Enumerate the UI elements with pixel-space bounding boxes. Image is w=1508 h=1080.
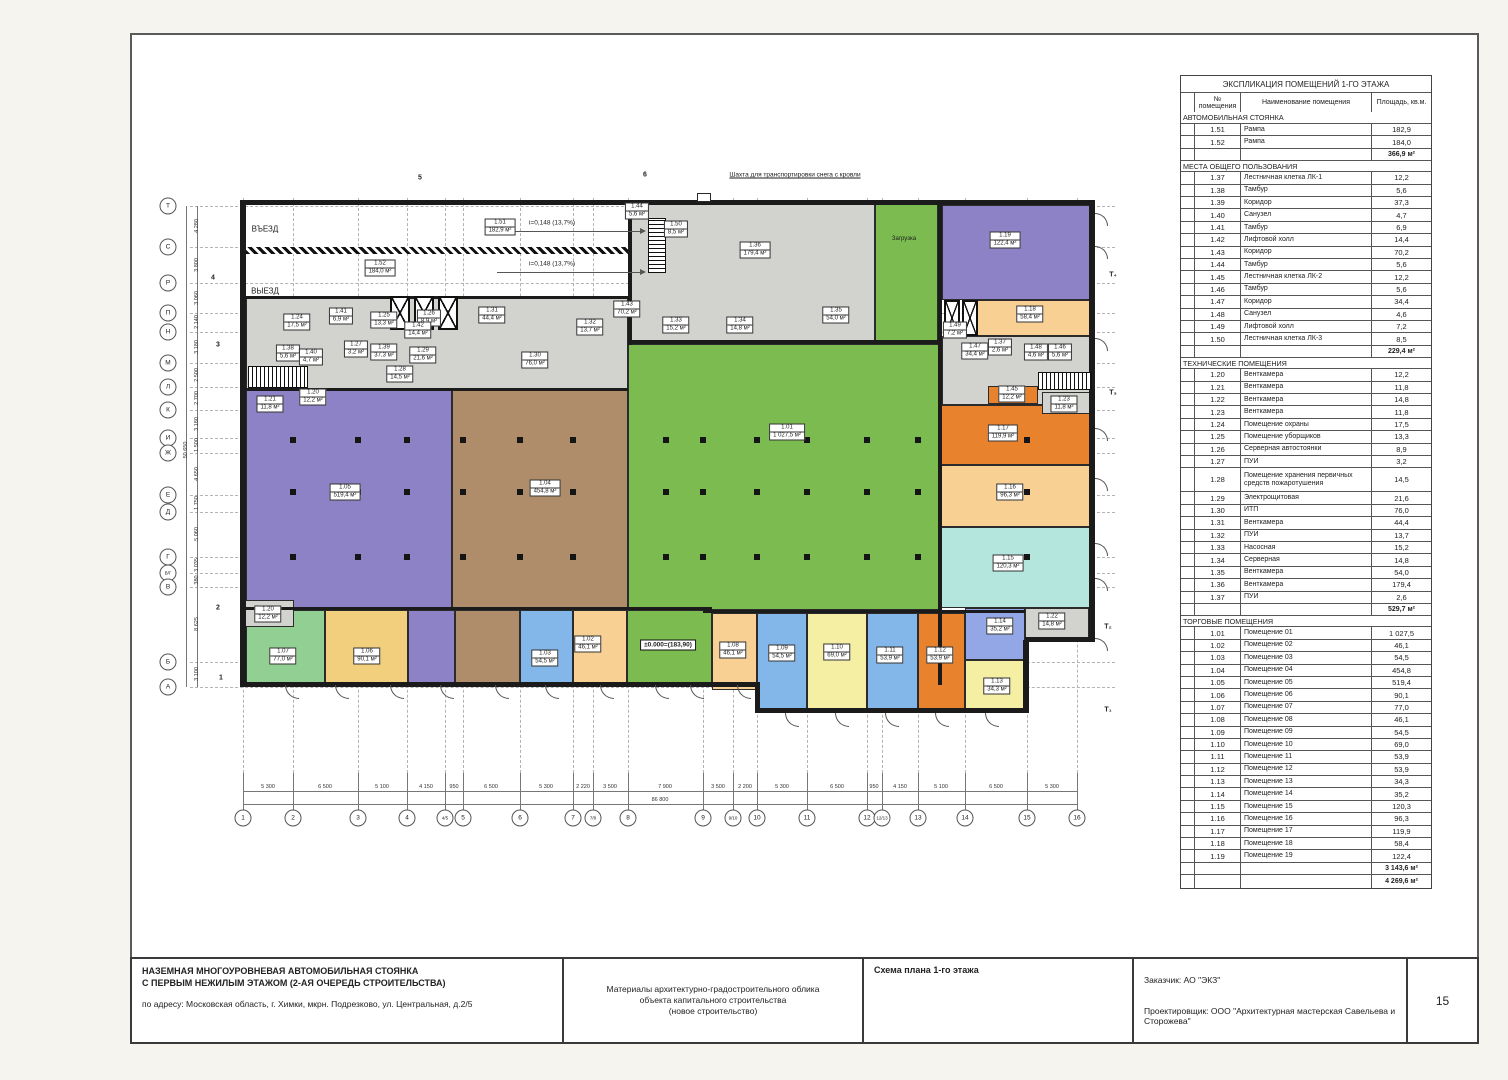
table-cell (1181, 714, 1194, 725)
room-tag-1.16: 1.1696,3 м² (996, 484, 1023, 501)
room-tag-1.35: 1.3554,0 м² (822, 307, 849, 324)
dim-label: 950 (449, 784, 458, 790)
table-cell: ТЕХНИЧЕСКИЕ ПОМЕЩЕНИЯ (1181, 358, 1431, 368)
room-tag-1.27: 1.273,2 м² (344, 341, 368, 358)
axis-bubble-1: 1 (235, 810, 252, 827)
table-cell: 1.41 (1194, 222, 1240, 233)
plan-text: i=0,148 (13,7%) (529, 220, 575, 227)
dim-label: 6 500 (830, 784, 844, 790)
table-row: 1.32ПУИ13,7 (1181, 529, 1431, 541)
room-tag-1.20: 1.2012,2 м² (299, 389, 326, 406)
table-cell (1240, 604, 1371, 616)
table-cell: 54,5 (1371, 652, 1431, 663)
axis-bubble-Л: Л (160, 379, 177, 396)
column-dot (355, 437, 361, 443)
section-mark-6: 6 (643, 172, 647, 179)
room-tag-1.04: 1.04454,8 м² (530, 480, 561, 497)
column-dot (1024, 489, 1030, 495)
table-cell: 76,0 (1371, 505, 1431, 516)
project-line1: НАЗЕМНАЯ МНОГОУРОВНЕВАЯ АВТОМОБИЛЬНАЯ СТ… (142, 965, 552, 977)
table-cell: 1.21 (1194, 382, 1240, 393)
table-cell (1181, 149, 1194, 161)
table-cell: 1.06 (1194, 689, 1240, 700)
table-row: 1.45Лестничная клетка ЛК-212,2 (1181, 270, 1431, 282)
project-address: по адресу: Московская область, г. Химки,… (142, 999, 552, 1009)
room-tag-1.15: 1.15120,3 м² (993, 555, 1024, 572)
dim-label: 950 (869, 784, 878, 790)
table-row: 1.31Венткамера44,4 (1181, 516, 1431, 528)
column-dot (460, 437, 466, 443)
table-cell: 4,6 (1371, 309, 1431, 320)
table-row: 1.06Помещение 0690,1 (1181, 688, 1431, 700)
table-cell (1181, 764, 1194, 775)
table-cell (1181, 640, 1194, 651)
table-cell (1181, 554, 1194, 565)
room-tag-1.20: 1.2012,2 м² (254, 606, 281, 623)
table-cell: 1.26 (1194, 444, 1240, 455)
table-cell: Насосная (1240, 542, 1371, 553)
slope-arrow-line (497, 231, 640, 232)
table-cell: 184,0 (1371, 136, 1431, 147)
table-cell: 69,0 (1371, 739, 1431, 750)
room-tag-1.11: 1.1153,9 м² (876, 647, 903, 664)
table-cell: Венткамера (1240, 369, 1371, 380)
table-cell: 54,0 (1371, 567, 1431, 578)
table-cell: 1.49 (1194, 321, 1240, 332)
table-row: 1.28Помещение хранения первичных средств… (1181, 467, 1431, 491)
column-dot (700, 554, 706, 560)
table-cell (1181, 406, 1194, 417)
table-cell: 1.24 (1194, 419, 1240, 430)
table-cell: 1.07 (1194, 702, 1240, 713)
column-dot (570, 489, 576, 495)
table-row: 1.50Лестничная клетка ЛК-38,5 (1181, 332, 1431, 344)
column-dot (864, 489, 870, 495)
plan-text: Шахта для транспортировки снега с кровли (729, 172, 860, 179)
axis-bubble-К: К (160, 402, 177, 419)
table-row: 1.40Санузел4,7 (1181, 208, 1431, 220)
table-cell (1181, 185, 1194, 196)
table-cell (1181, 542, 1194, 553)
room-tag-1.19: 1.19122,4 м² (990, 232, 1021, 249)
table-row: 1.14Помещение 1435,2 (1181, 787, 1431, 799)
table-cell: 3 143,6 м² (1371, 863, 1431, 875)
table-cell (1181, 739, 1194, 750)
door-arc (600, 685, 614, 699)
table-cell (1181, 419, 1194, 430)
table-row: 1.48Санузел4,6 (1181, 308, 1431, 320)
table-cell: 1.33 (1194, 542, 1240, 553)
wall (938, 202, 942, 342)
table-row: 1.34Серверная14,8 (1181, 553, 1431, 565)
table-cell: Помещение 14 (1240, 788, 1371, 799)
axis-bubble-14: 14 (957, 810, 974, 827)
table-row: 1.11Помещение 1153,9 (1181, 750, 1431, 762)
table-cell: АВТОМОБИЛЬНАЯ СТОЯНКА (1181, 112, 1431, 123)
plan-text: ВЪЕЗД (252, 225, 279, 234)
wall (628, 205, 632, 345)
wall (246, 607, 712, 610)
table-cell: Помещение 10 (1240, 739, 1371, 750)
table-cell: 1.19 (1194, 850, 1240, 861)
wall (240, 200, 1095, 205)
table-cell: 77,0 (1371, 702, 1431, 713)
table-cell: 1.05 (1194, 677, 1240, 688)
table-cell (1181, 579, 1194, 590)
table-cell: 1.14 (1194, 788, 1240, 799)
column-dot (517, 489, 523, 495)
dim-label: 6 500 (318, 784, 332, 790)
table-cell: 1.18 (1194, 838, 1240, 849)
table-cell: Помещение 15 (1240, 801, 1371, 812)
table-cell: 15,2 (1371, 542, 1431, 553)
room-tag-1.12: 1.1253,9 м² (926, 647, 953, 664)
axis-bubble-11: 11 (799, 810, 816, 827)
table-row: 1.07Помещение 0777,0 (1181, 701, 1431, 713)
table-cell: 529,7 м² (1371, 604, 1431, 616)
dim-label-left: 3 100 (194, 667, 200, 681)
table-cell: 5,6 (1371, 185, 1431, 196)
table-cell: Помещение 19 (1240, 850, 1371, 861)
door-arc (690, 685, 704, 699)
table-row: 1.21Венткамера11,8 (1181, 381, 1431, 393)
column-dot (804, 489, 810, 495)
table-cell: Лестничная клетка ЛК-1 (1240, 172, 1371, 183)
table-cell (1194, 149, 1240, 161)
table-cell: 1.40 (1194, 209, 1240, 220)
table-cell: Серверная автостоянки (1240, 444, 1371, 455)
wall (938, 344, 942, 685)
table-cell: 1.15 (1194, 801, 1240, 812)
dim-label-left: 8 625 (194, 617, 200, 631)
zone-loading-strip (875, 202, 938, 344)
table-row: 1.30ИТП76,0 (1181, 504, 1431, 516)
room-tag-1.14: 1.1435,2 м² (986, 618, 1013, 635)
table-row: 1.24Помещение охраны17,5 (1181, 418, 1431, 430)
room-tag-1.40: 1.404,7 м² (299, 349, 323, 366)
column-dot (700, 437, 706, 443)
table-cell: Помещение 17 (1240, 826, 1371, 837)
room-tag-1.32: 1.3213,7 м² (576, 319, 603, 336)
table-cell: 14,5 (1371, 468, 1431, 491)
column-dot (517, 554, 523, 560)
table-row: 1.36Венткамера179,4 (1181, 578, 1431, 590)
table-cell: 44,4 (1371, 517, 1431, 528)
table-cell (1181, 604, 1194, 616)
wall (628, 340, 942, 344)
door-arc (390, 685, 404, 699)
table-row: 4 269,6 м² (1181, 874, 1431, 888)
table-row: 1.37ПУИ2,6 (1181, 591, 1431, 603)
table-cell: 17,5 (1371, 419, 1431, 430)
table-row: 229,4 м² (1181, 345, 1431, 358)
column-dot (915, 489, 921, 495)
table-cell: 4 269,6 м² (1371, 875, 1431, 888)
table-cell: 1.12 (1194, 764, 1240, 775)
col-number-header: № помещения (1194, 93, 1240, 112)
zone-room-1.04 (452, 390, 628, 610)
col-area-header: Площадь, кв.м. (1371, 93, 1431, 112)
table-cell: 1 027,5 (1371, 627, 1431, 638)
customer-line: Заказчик: АО "ЭКЗ" (1144, 975, 1396, 985)
plan-text: i=0,148 (13,7%) (529, 261, 575, 268)
level-mark: ±0.000=(183,90) (640, 640, 696, 651)
door-arc (545, 685, 559, 699)
axis-bubble-5: 5 (455, 810, 472, 827)
table-cell (1181, 492, 1194, 503)
table-cell (1181, 801, 1194, 812)
column-dot (290, 489, 296, 495)
table-cell: Помещение 07 (1240, 702, 1371, 713)
table-cell (1181, 172, 1194, 183)
table-cell (1240, 875, 1371, 888)
table-cell: 37,3 (1371, 197, 1431, 208)
materials-line2: объекта капитального строительства (574, 995, 852, 1006)
table-cell: 1.11 (1194, 751, 1240, 762)
door-arc (885, 713, 899, 727)
materials-cell: Материалы архитектурно-градостроительног… (562, 959, 862, 1042)
table-cell (1181, 677, 1194, 688)
section-mark-Т₃: Т₃ (1109, 390, 1117, 397)
table-cell: 182,9 (1371, 124, 1431, 135)
table-row: 1.26Серверная автостоянки8,9 (1181, 443, 1431, 455)
table-row: 1.01Помещение 011 027,5 (1181, 626, 1431, 638)
dim-overall-label: 86 800 (652, 797, 669, 803)
table-cell: ТОРГОВЫЕ ПОМЕЩЕНИЯ (1181, 616, 1431, 626)
room-tag-1.31: 1.3144,4 м² (478, 307, 505, 324)
axis-bubble-9/10: 9/10 (725, 810, 742, 827)
column-dot (754, 489, 760, 495)
axis-bubble-12/13: 12/13 (874, 810, 891, 827)
table-row: 1.23Венткамера11,8 (1181, 405, 1431, 417)
table-cell (1181, 271, 1194, 282)
table-cell: 46,1 (1371, 714, 1431, 725)
door-arc (1095, 213, 1108, 226)
table-cell: 70,2 (1371, 247, 1431, 258)
room-tag-1.29: 1.2921,6 м² (409, 347, 436, 364)
table-cell: Лифтовой холл (1240, 321, 1371, 332)
room-tag-1.05: 1.05519,4 м² (330, 484, 361, 501)
column-dot (355, 554, 361, 560)
table-cell (1194, 604, 1240, 616)
table-cell: 1.44 (1194, 259, 1240, 270)
table-cell: Тамбур (1240, 259, 1371, 270)
table-cell (1181, 875, 1194, 888)
materials-line3: (новое строительство) (574, 1006, 852, 1017)
table-cell: Рампа (1240, 136, 1371, 147)
table-cell (1181, 259, 1194, 270)
table-cell: 4,7 (1371, 209, 1431, 220)
designer-line: Проектировщик: ООО "Архитектурная мастер… (1144, 1006, 1396, 1026)
table-cell: 11,8 (1371, 406, 1431, 417)
table-cell: 54,5 (1371, 727, 1431, 738)
room-tag-1.39: 1.3937,3 м² (370, 344, 397, 361)
dim-label-left: 3 060 (194, 291, 200, 305)
table-cell: 1.27 (1194, 456, 1240, 467)
axis-bubble-Р: Р (160, 275, 177, 292)
room-tag-1.13: 1.1334,3 м² (983, 678, 1010, 695)
axis-bubble-Н: Н (160, 324, 177, 341)
table-row: 1.47Коридор34,4 (1181, 295, 1431, 307)
wall (240, 200, 246, 687)
section-mark-5: 5 (418, 175, 422, 182)
dim-label-left: 3 180 (194, 340, 200, 354)
room-tag-1.21: 1.2111,8 м² (256, 396, 283, 413)
plan-text: ВЫЕЗД (251, 287, 279, 296)
room-tag-1.18: 1.1858,4 м² (1016, 306, 1043, 323)
table-row: 1.46Тамбур5,6 (1181, 283, 1431, 295)
table-cell: Помещение уборщиков (1240, 431, 1371, 442)
table-cell: Венткамера (1240, 394, 1371, 405)
room-tag-1.37: 1.372,6 м² (988, 339, 1012, 356)
table-cell: Тамбур (1240, 222, 1371, 233)
table-row: 1.17Помещение 17119,9 (1181, 825, 1431, 837)
door-arc (335, 685, 349, 699)
explication-table: ЭКСПЛИКАЦИЯ ПОМЕЩЕНИЙ 1-ГО ЭТАЖА № помещ… (1180, 75, 1432, 889)
room-tag-1.36: 1.36179,4 м² (740, 242, 771, 259)
table-cell: 53,9 (1371, 764, 1431, 775)
dim-label: 5 300 (1045, 784, 1059, 790)
room-tag-1.25: 1.2513,3 м² (370, 312, 397, 329)
zone-room-1.10 (807, 613, 867, 711)
table-cell: Помещение 05 (1240, 677, 1371, 688)
table-cell: 1.34 (1194, 554, 1240, 565)
room-tag-1.42: 1.4214,4 м² (404, 322, 431, 339)
table-cell: Серверная (1240, 554, 1371, 565)
room-tag-1.47: 1.4734,4 м² (961, 343, 988, 360)
table-row: 1.51Рампа182,9 (1181, 123, 1431, 135)
table-cell (1181, 592, 1194, 603)
column-dot (570, 437, 576, 443)
table-cell (1181, 652, 1194, 663)
room-tag-1.45: 1.4512,2 м² (998, 386, 1025, 403)
table-cell: Помещение 06 (1240, 689, 1371, 700)
axis-bubble-6: 6 (512, 810, 529, 827)
table-cell: Лестничная клетка ЛК-3 (1240, 333, 1371, 344)
axis-bubble-Т: Т (160, 198, 177, 215)
dim-label-left: 1 500 (194, 438, 200, 452)
dim-label-left: 3 800 (194, 258, 200, 272)
column-dot (404, 437, 410, 443)
door-arc (495, 685, 509, 699)
door-arc (440, 685, 454, 699)
table-cell: 1.09 (1194, 727, 1240, 738)
axis-bubble-4: 4 (399, 810, 416, 827)
table-cell (1181, 505, 1194, 516)
table-cell (1181, 689, 1194, 700)
axis-bubble-В: В (160, 579, 177, 596)
axis-bubble-13: 13 (910, 810, 927, 827)
door-arc (935, 713, 949, 727)
col-blank (1181, 93, 1194, 112)
table-cell: Помещение 09 (1240, 727, 1371, 738)
table-cell (1181, 296, 1194, 307)
dim-label: 2 200 (738, 784, 752, 790)
table-cell (1181, 284, 1194, 295)
table-cell: ПУИ (1240, 456, 1371, 467)
table-row: 1.38Тамбур5,6 (1181, 184, 1431, 196)
table-cell: Лестничная клетка ЛК-2 (1240, 271, 1371, 282)
axis-lead (1077, 773, 1078, 810)
table-cell: 7,2 (1371, 321, 1431, 332)
table-cell: 5,6 (1371, 259, 1431, 270)
room-tag-1.10: 1.1069,0 м² (823, 644, 850, 661)
door-arc (1095, 338, 1108, 351)
slope-arrow-head (640, 269, 646, 275)
table-cell: 1.48 (1194, 309, 1240, 320)
dim-line-overall (243, 804, 1077, 805)
table-cell: Помещение 12 (1240, 764, 1371, 775)
table-cell: 1.35 (1194, 567, 1240, 578)
zone-room-1.05b (408, 610, 455, 684)
axis-bubble-Е: Е (160, 487, 177, 504)
axis-bubble-10: 10 (749, 810, 766, 827)
table-row: 1.15Помещение 15120,3 (1181, 800, 1431, 812)
room-tag-1.03: 1.0354,5 м² (531, 650, 558, 667)
door-arc (785, 713, 799, 727)
room-tag-1.48: 1.484,6 м² (1024, 344, 1048, 361)
table-cell: 1.51 (1194, 124, 1240, 135)
table-cell (1181, 209, 1194, 220)
room-tag-1.08: 1.0846,1 м² (719, 642, 746, 659)
materials-line1: Материалы архитектурно-градостроительног… (574, 984, 852, 995)
table-cell: 120,3 (1371, 801, 1431, 812)
column-dot (663, 437, 669, 443)
table-cell: ПУИ (1240, 530, 1371, 541)
table-cell: Помещение 03 (1240, 652, 1371, 663)
slope-arrow-line (497, 272, 640, 273)
column-dot (570, 554, 576, 560)
table-cell: Тамбур (1240, 284, 1371, 295)
table-row: 1.44Тамбур5,6 (1181, 258, 1431, 270)
table-row: 366,9 м² (1181, 148, 1431, 161)
table-cell (1181, 431, 1194, 442)
table-cell (1181, 247, 1194, 258)
axis-bubble-С: С (160, 239, 177, 256)
dim-label-left: 4 650 (194, 467, 200, 481)
table-cell: 1.37 (1194, 172, 1240, 183)
dim-line (243, 791, 1077, 792)
table-cell: 1.47 (1194, 296, 1240, 307)
table-cell: ПУИ (1240, 592, 1371, 603)
table-cell: МЕСТА ОБЩЕГО ПОЛЬЗОВАНИЯ (1181, 161, 1431, 171)
table-row: ТЕХНИЧЕСКИЕ ПОМЕЩЕНИЯ (1181, 357, 1431, 368)
axis-bubble-Д: Д (160, 504, 177, 521)
room-tag-1.30: 1.3076,0 м² (521, 352, 548, 369)
table-cell: 1.30 (1194, 505, 1240, 516)
table-cell: Венткамера (1240, 406, 1371, 417)
wall (1023, 640, 1029, 713)
axis-bubble-2: 2 (285, 810, 302, 827)
table-row: 1.09Помещение 0954,5 (1181, 726, 1431, 738)
door-arc (1095, 638, 1108, 651)
table-cell: Венткамера (1240, 567, 1371, 578)
table-cell (1194, 346, 1240, 358)
page-number: 15 (1406, 959, 1477, 1042)
table-row: 1.13Помещение 1334,3 (1181, 775, 1431, 787)
room-tag-1.02: 1.0246,1 м² (574, 636, 601, 653)
table-cell: 229,4 м² (1371, 346, 1431, 358)
table-cell: 1.31 (1194, 517, 1240, 528)
table-cell (1181, 776, 1194, 787)
column-dot (663, 554, 669, 560)
table-cell: 1.29 (1194, 492, 1240, 503)
table-cell (1181, 702, 1194, 713)
room-tag-1.46: 1.465,6 м² (1048, 344, 1072, 361)
table-cell: 8,9 (1371, 444, 1431, 455)
table-cell: Коридор (1240, 247, 1371, 258)
table-row: 1.05Помещение 05519,4 (1181, 676, 1431, 688)
